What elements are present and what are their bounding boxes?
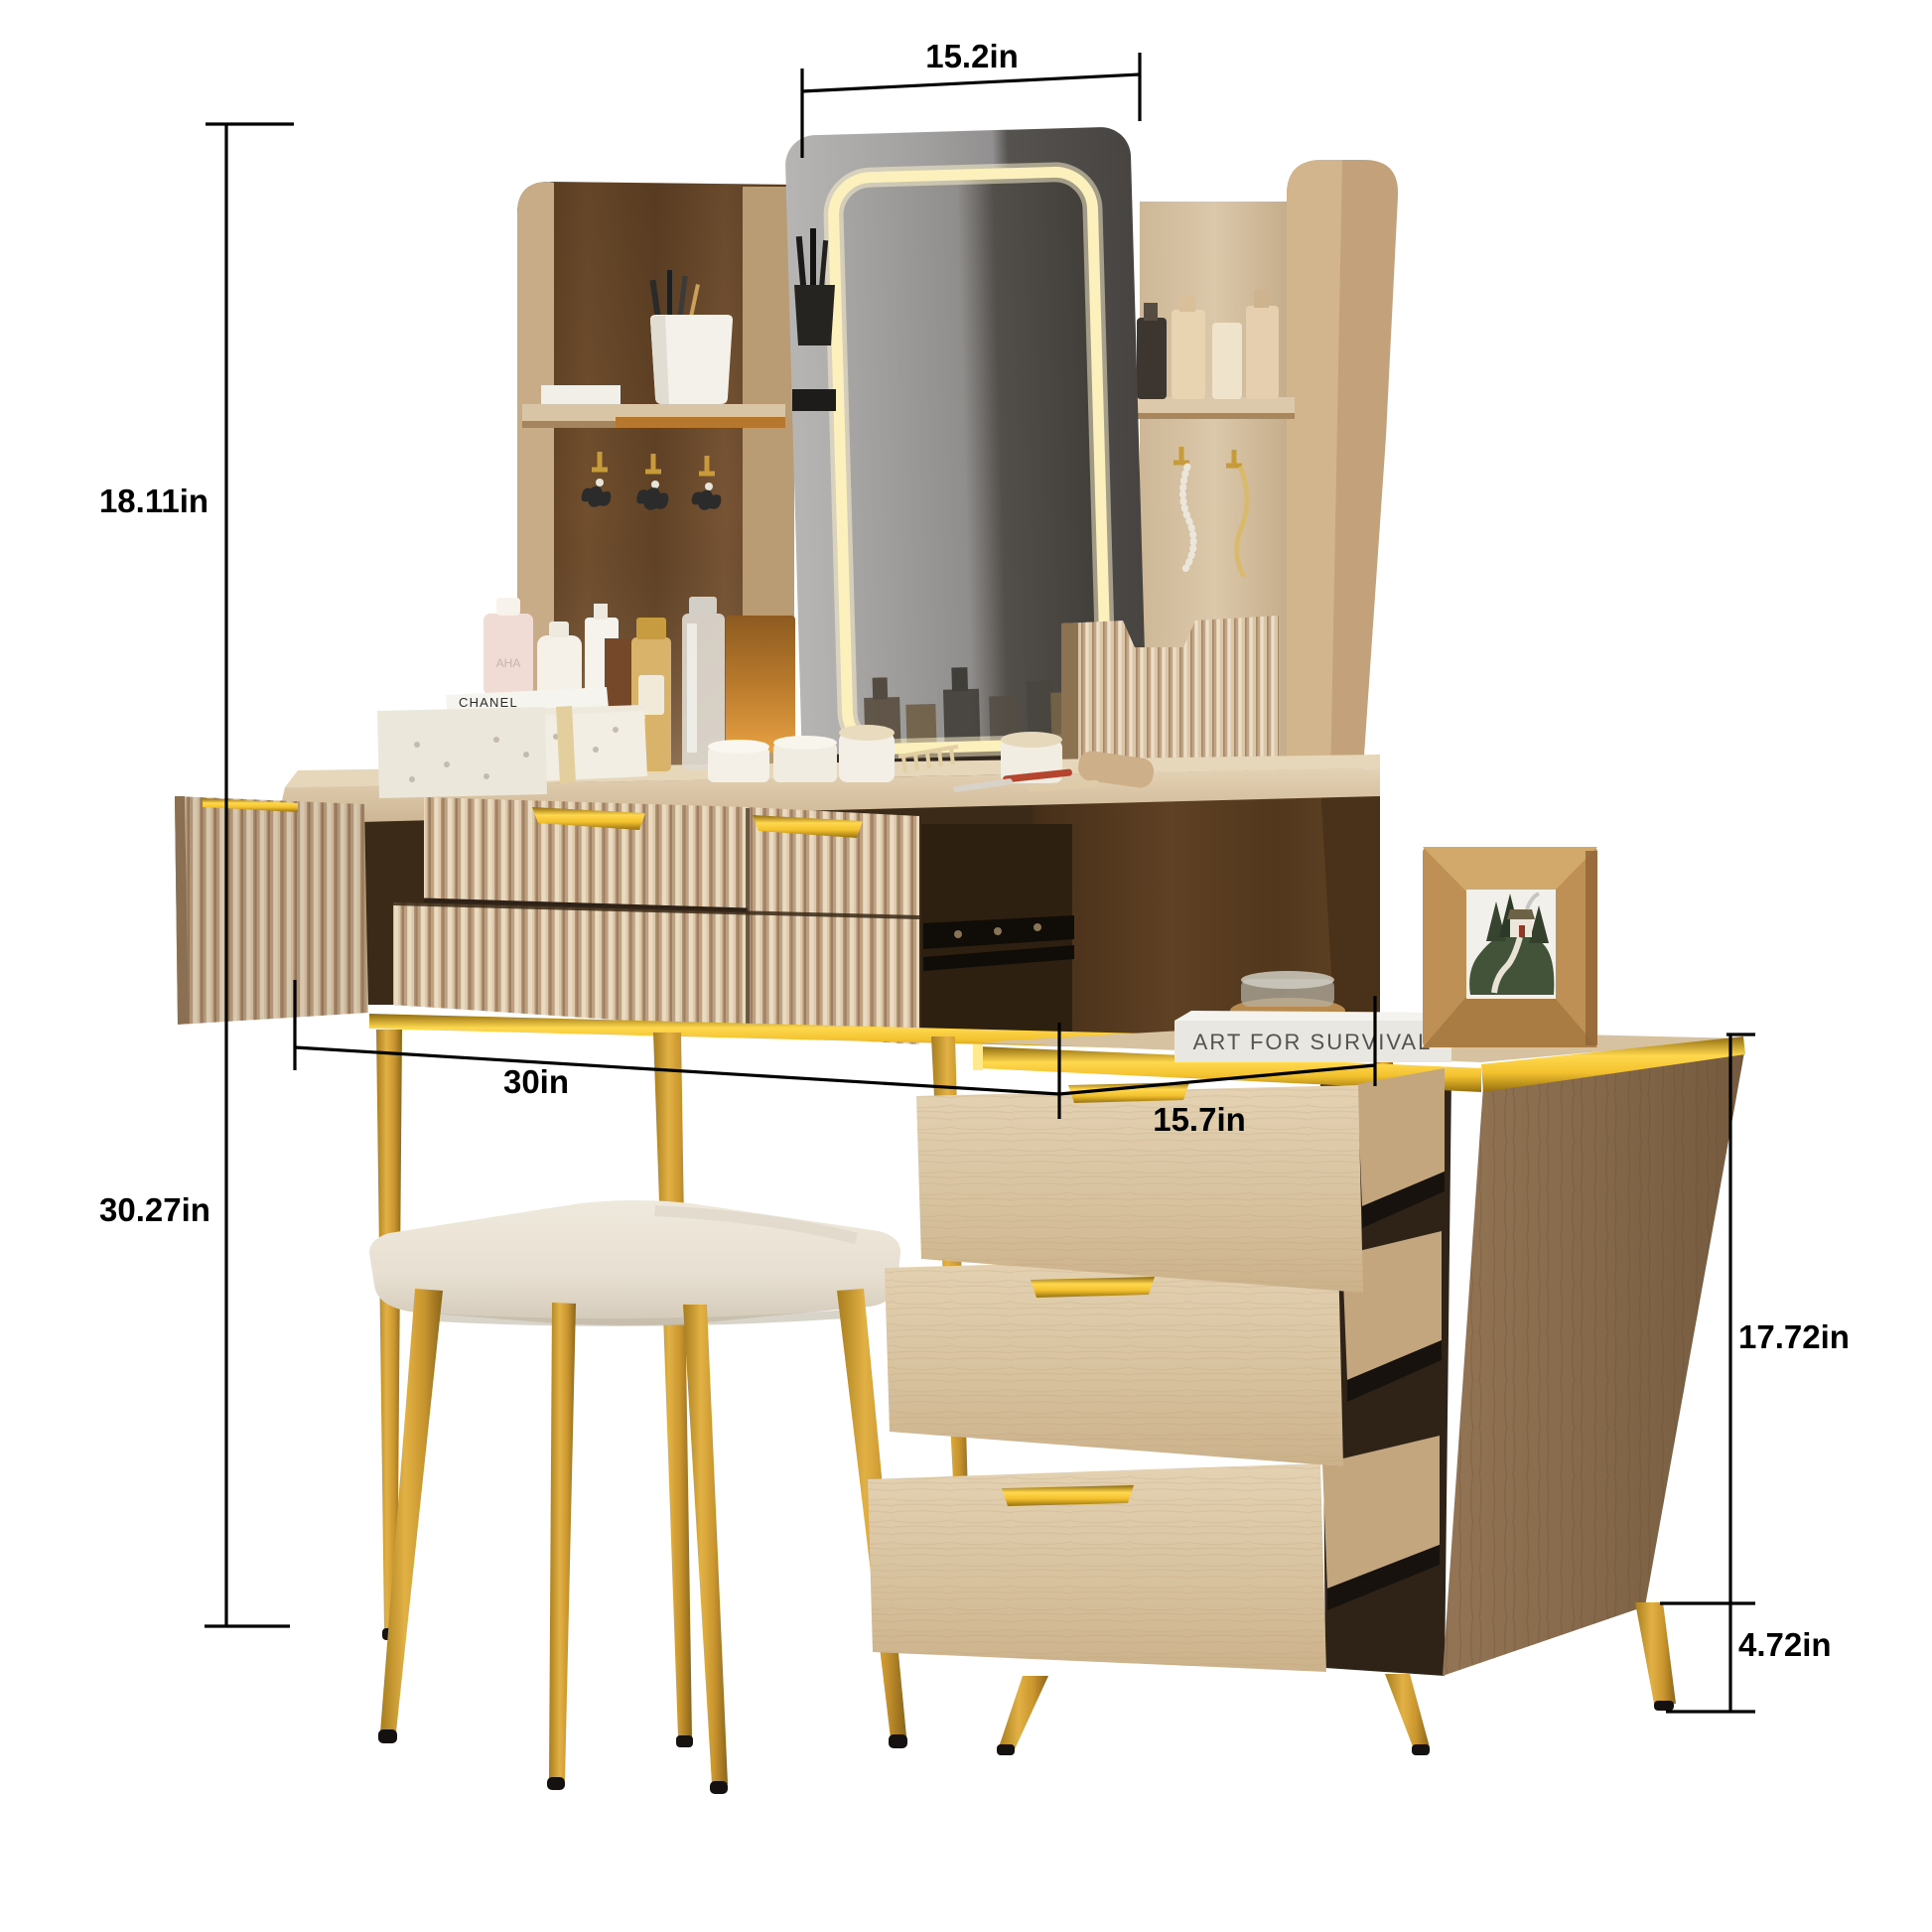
svg-text:15.7in: 15.7in (1153, 1101, 1246, 1138)
svg-text:ART FOR SURVIVAL: ART FOR SURVIVAL (1193, 1030, 1433, 1054)
svg-text:4.72in: 4.72in (1738, 1626, 1832, 1663)
svg-text:18.11in: 18.11in (99, 483, 208, 519)
svg-text:15.2in: 15.2in (925, 38, 1019, 74)
svg-text:CHANEL: CHANEL (459, 695, 518, 710)
svg-text:30in: 30in (503, 1063, 569, 1100)
svg-text:17.72in: 17.72in (1738, 1318, 1850, 1355)
svg-text:AHA: AHA (496, 656, 521, 670)
svg-text:30.27in: 30.27in (99, 1191, 210, 1228)
